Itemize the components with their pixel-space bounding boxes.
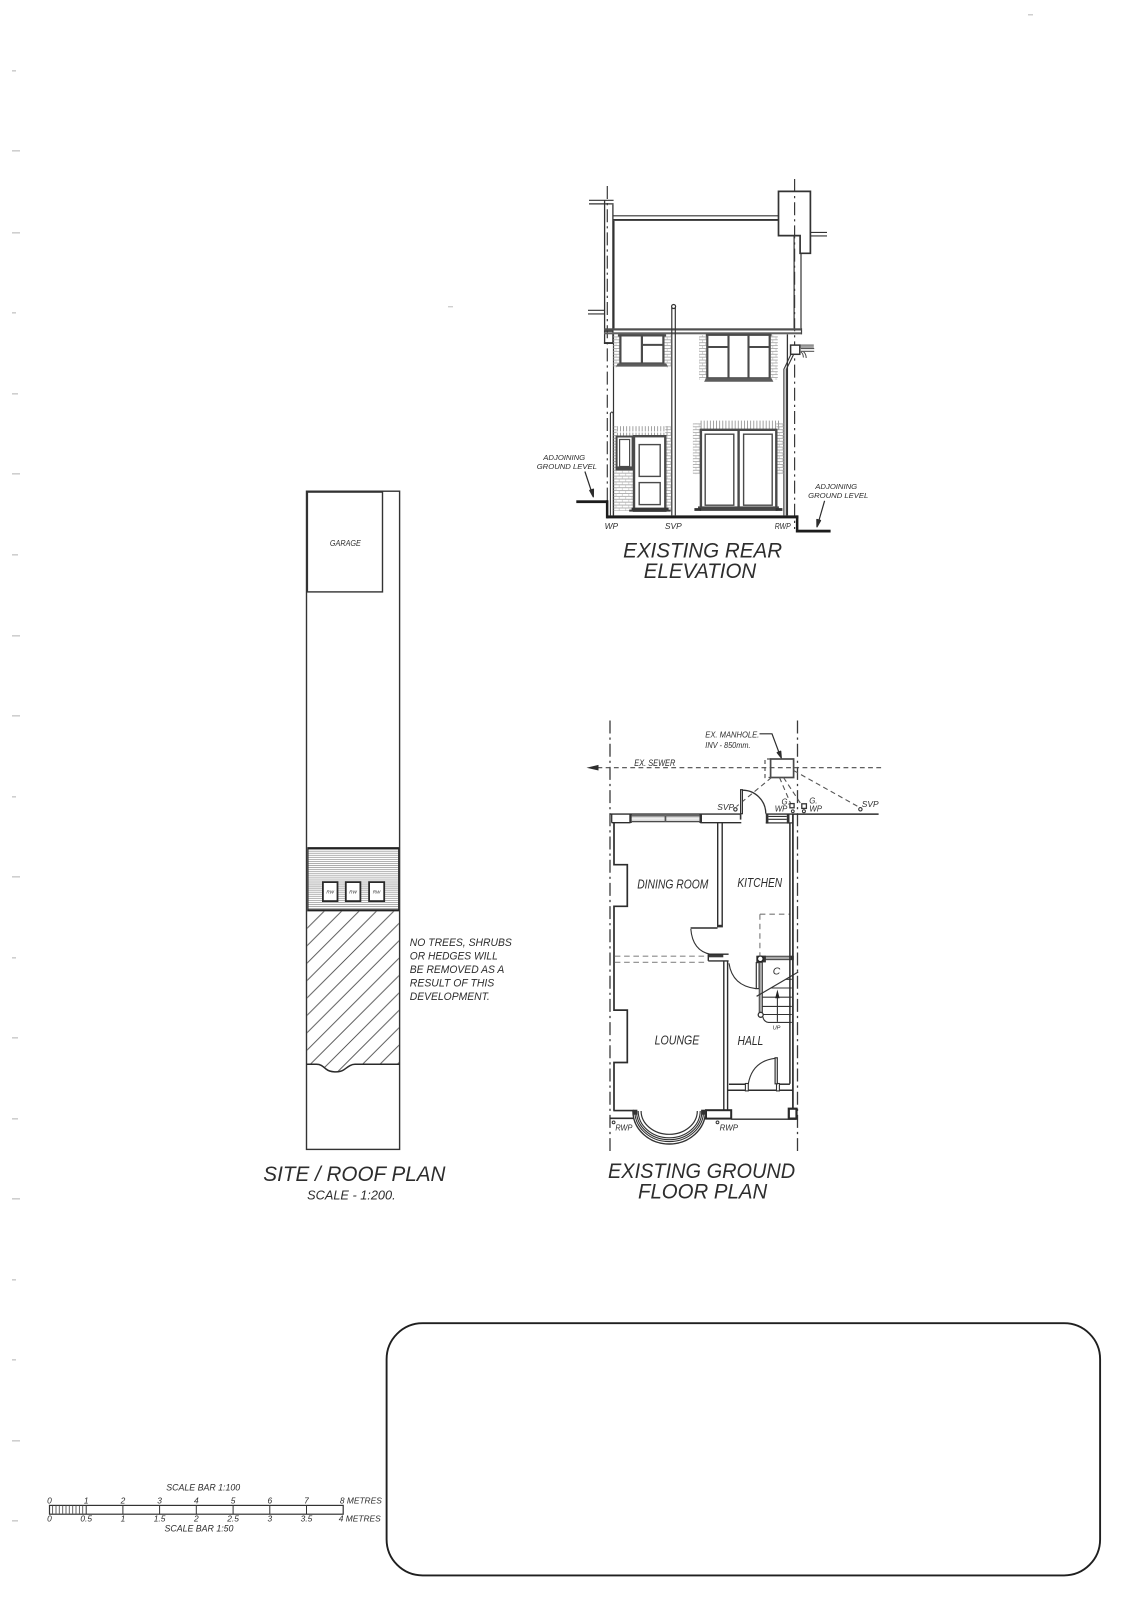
svg-text:ADJOINING: ADJOINING [814, 482, 857, 491]
svg-text:EX. SEWER: EX. SEWER [634, 758, 675, 768]
svg-text:BE REMOVED AS A: BE REMOVED AS A [410, 964, 505, 976]
svg-text:RW: RW [373, 890, 381, 895]
svg-text:LOUNGE: LOUNGE [655, 1033, 700, 1048]
svg-text:UP: UP [773, 1025, 781, 1031]
svg-text:WP: WP [775, 805, 788, 814]
svg-text:DEVELOPMENT.: DEVELOPMENT. [410, 991, 490, 1003]
svg-text:EX. MANHOLE.: EX. MANHOLE. [705, 730, 759, 740]
svg-text:0.5: 0.5 [80, 1513, 92, 1523]
svg-text:4: 4 [194, 1496, 199, 1506]
svg-text:RWP: RWP [720, 1123, 739, 1133]
svg-text:0: 0 [47, 1513, 52, 1523]
svg-text:2.5: 2.5 [226, 1513, 239, 1523]
svg-text:WP: WP [605, 521, 619, 531]
svg-text:7: 7 [304, 1496, 309, 1506]
svg-text:8 METRES: 8 METRES [340, 1496, 382, 1506]
svg-text:C: C [773, 967, 781, 978]
svg-text:SVP: SVP [717, 802, 734, 812]
svg-text:KITCHEN: KITCHEN [737, 875, 782, 890]
svg-text:OR HEDGES WILL: OR HEDGES WILL [410, 951, 498, 963]
svg-text:2: 2 [120, 1496, 126, 1506]
svg-text:5: 5 [231, 1496, 236, 1506]
svg-text:SVP: SVP [665, 521, 682, 531]
svg-text:SVP: SVP [862, 799, 879, 809]
svg-text:6: 6 [267, 1496, 272, 1506]
svg-text:SCALE BAR 1:100: SCALE BAR 1:100 [166, 1483, 240, 1493]
svg-text:HALL: HALL [738, 1033, 764, 1048]
svg-text:RW: RW [349, 890, 357, 895]
svg-text:SITE / ROOF PLAN: SITE / ROOF PLAN [263, 1162, 446, 1186]
svg-text:ADJOINING: ADJOINING [542, 453, 585, 462]
svg-text:2: 2 [193, 1513, 199, 1523]
svg-text:SCALE BAR 1:50: SCALE BAR 1:50 [165, 1523, 234, 1533]
svg-text:NO TREES, SHRUBS: NO TREES, SHRUBS [410, 937, 513, 949]
svg-text:3: 3 [267, 1513, 272, 1523]
svg-text:GROUND LEVEL: GROUND LEVEL [808, 491, 868, 500]
svg-text:RWP: RWP [775, 521, 791, 531]
svg-text:1: 1 [121, 1513, 126, 1523]
svg-text:0: 0 [47, 1496, 52, 1506]
svg-text:GARAGE: GARAGE [330, 539, 362, 548]
svg-text:SCALE - 1:200.: SCALE - 1:200. [307, 1188, 396, 1203]
svg-text:GROUND LEVEL: GROUND LEVEL [537, 462, 597, 471]
svg-text:1: 1 [84, 1496, 89, 1506]
svg-text:4 METRES: 4 METRES [339, 1513, 381, 1523]
svg-text:WP: WP [809, 805, 822, 814]
svg-text:ELEVATION: ELEVATION [644, 559, 757, 583]
svg-text:RWP: RWP [615, 1123, 632, 1133]
svg-text:RW: RW [326, 890, 334, 895]
svg-text:3: 3 [157, 1496, 162, 1506]
svg-text:1.5: 1.5 [154, 1513, 166, 1523]
svg-text:FLOOR PLAN: FLOOR PLAN [638, 1179, 768, 1203]
svg-text:RESULT OF THIS: RESULT OF THIS [410, 978, 495, 990]
svg-text:DINING ROOM: DINING ROOM [637, 876, 708, 891]
svg-text:3.5: 3.5 [301, 1513, 313, 1523]
svg-text:INV - 850mm.: INV - 850mm. [705, 740, 750, 750]
